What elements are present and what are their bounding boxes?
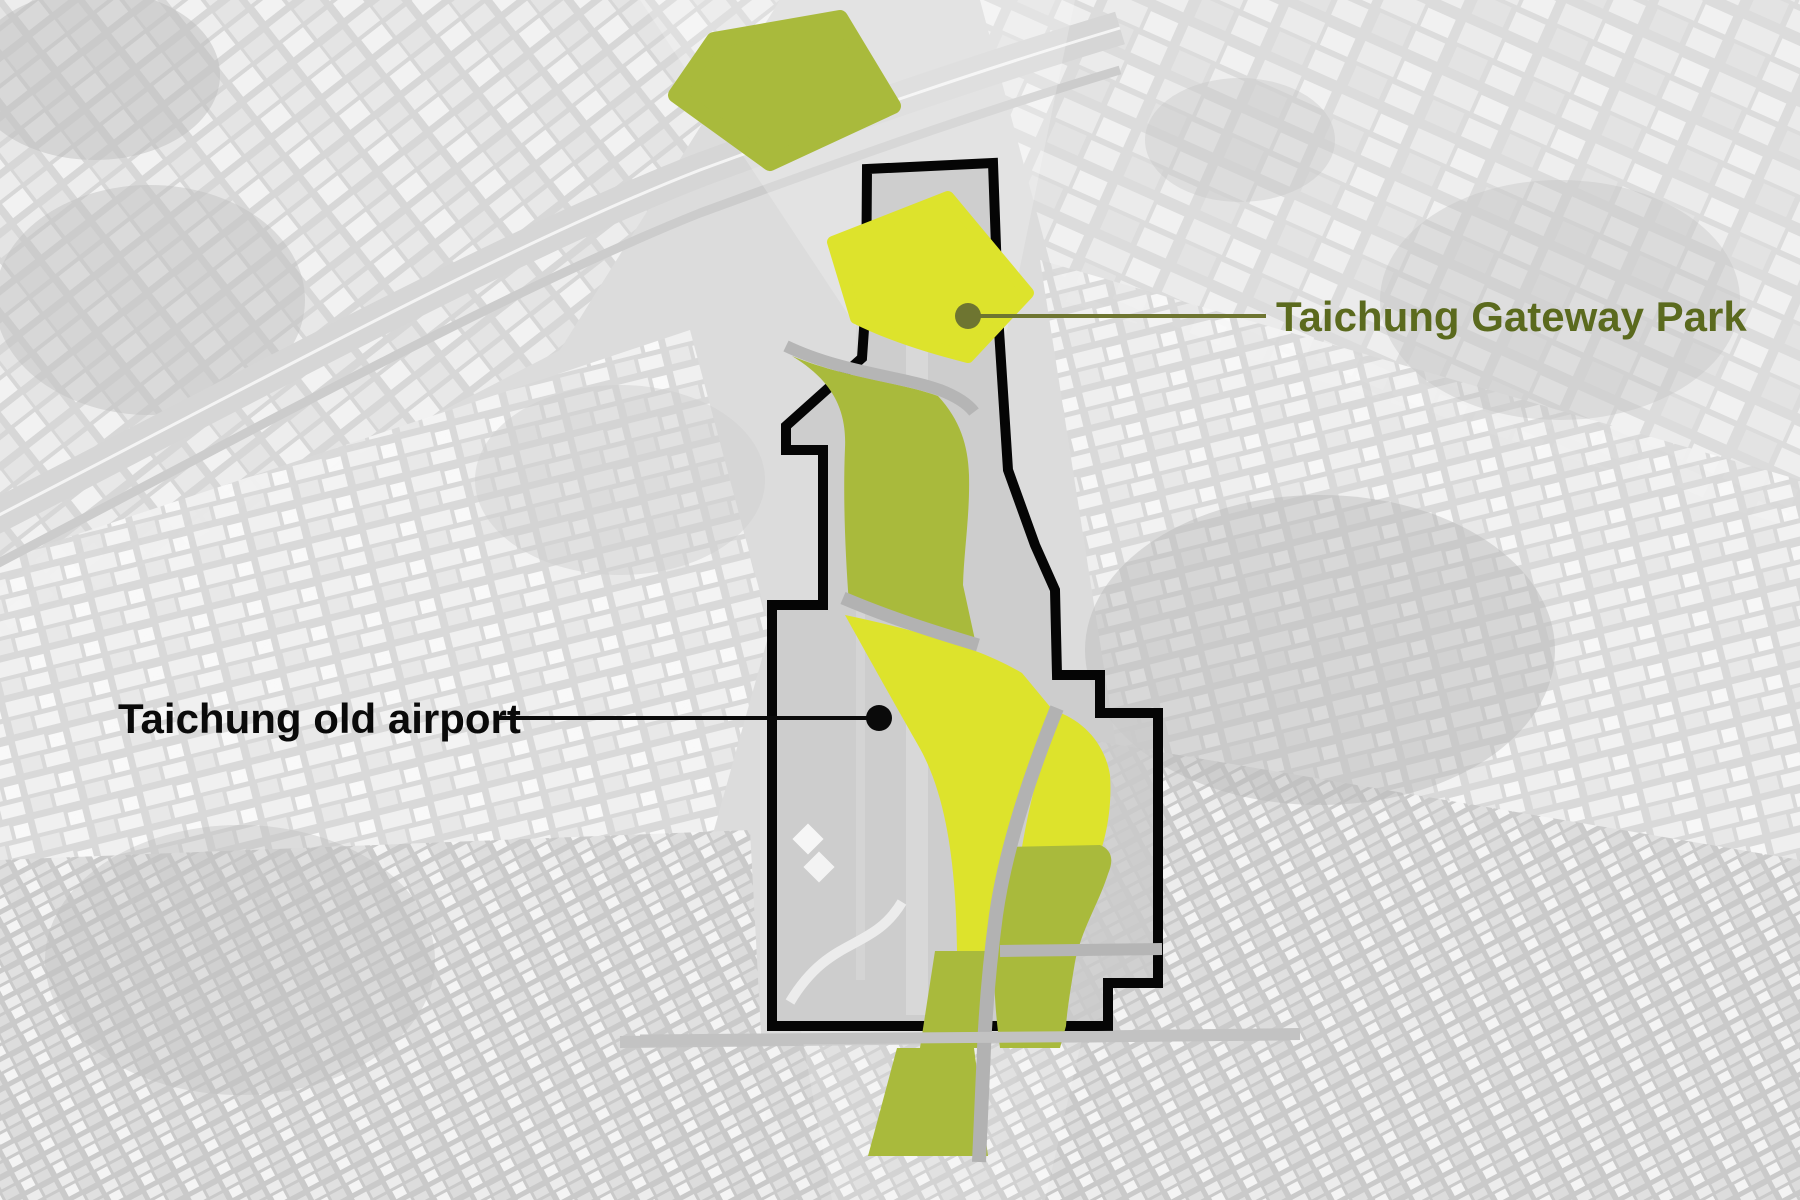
south-cross-street <box>640 1035 1290 1040</box>
old-airport-label: Taichung old airport <box>118 695 521 742</box>
map-canvas: Taichung Gateway Park Taichung old airpo… <box>0 0 1800 1200</box>
east-cross-street <box>1000 949 1162 951</box>
site-map: Taichung Gateway Park Taichung old airpo… <box>0 0 1800 1200</box>
old-airport-marker-dot <box>866 705 892 731</box>
gateway-park-label: Taichung Gateway Park <box>1276 293 1747 340</box>
vegetation-patch <box>475 385 765 575</box>
gateway-park-marker-dot <box>955 303 981 329</box>
vegetation-patch <box>1145 78 1335 202</box>
vegetation-patch <box>45 825 435 1095</box>
